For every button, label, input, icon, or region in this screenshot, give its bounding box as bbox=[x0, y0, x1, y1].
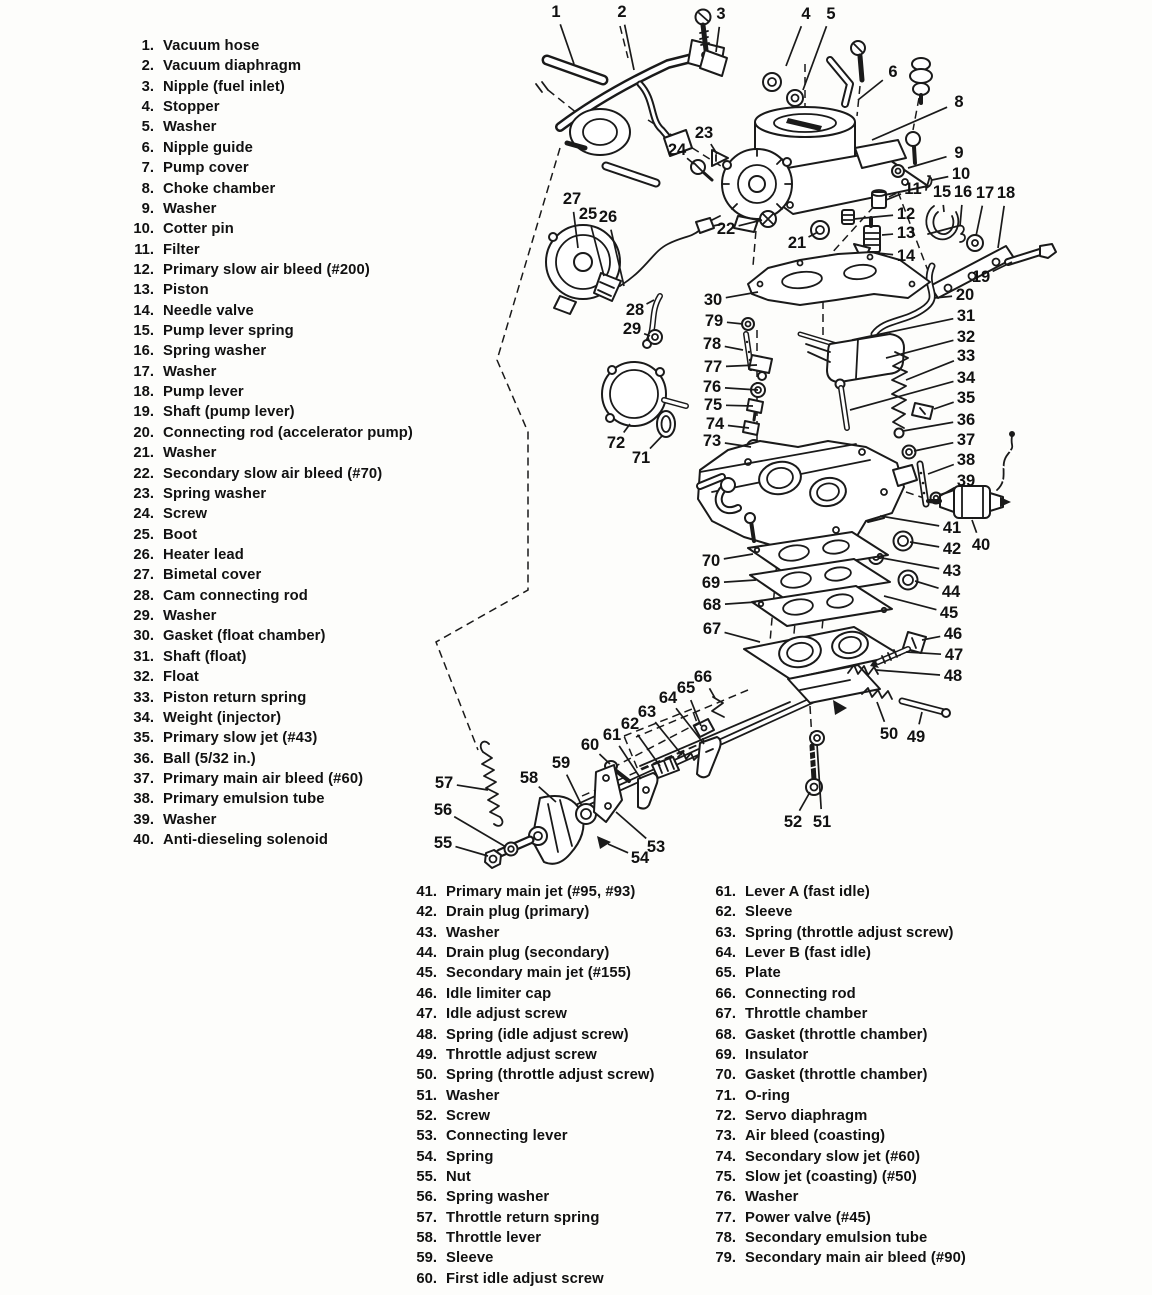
callout-leader-18 bbox=[998, 206, 1004, 248]
callout-leader-70 bbox=[724, 554, 753, 559]
callout-leader-10 bbox=[932, 177, 948, 180]
callout-70: 70 bbox=[702, 552, 720, 570]
callout-64: 64 bbox=[659, 689, 678, 707]
callout-18: 18 bbox=[997, 184, 1015, 202]
callout-48: 48 bbox=[944, 667, 962, 685]
callout-4: 4 bbox=[801, 5, 811, 23]
callout-leader-28 bbox=[647, 300, 654, 304]
callout-11: 11 bbox=[904, 180, 921, 198]
callout-68: 68 bbox=[703, 596, 721, 614]
callout-71: 71 bbox=[632, 449, 650, 467]
callout-63: 63 bbox=[638, 703, 656, 721]
callout-39: 39 bbox=[957, 472, 975, 490]
callout-72: 72 bbox=[607, 434, 625, 452]
callout-12: 12 bbox=[897, 205, 915, 223]
callout-9: 9 bbox=[954, 144, 963, 162]
callout-78: 78 bbox=[703, 335, 721, 353]
callout-32: 32 bbox=[957, 328, 975, 346]
callout-leader-35 bbox=[934, 402, 954, 409]
callout-28: 28 bbox=[626, 301, 644, 319]
secondary-jets-column bbox=[742, 318, 772, 454]
callout-leader-16 bbox=[960, 205, 962, 226]
callout-leader-65 bbox=[691, 700, 701, 726]
callout-leader-54 bbox=[608, 844, 628, 853]
callout-79: 79 bbox=[705, 312, 723, 330]
callout-leader-55 bbox=[455, 847, 488, 856]
callout-leader-13 bbox=[882, 234, 893, 235]
callout-leader-79 bbox=[727, 322, 743, 324]
callout-leader-50 bbox=[877, 702, 884, 722]
callout-leader-57 bbox=[457, 785, 488, 790]
callout-23: 23 bbox=[695, 124, 713, 142]
callout-leader-2 bbox=[625, 25, 634, 70]
callout-leader-67 bbox=[725, 632, 760, 642]
callout-52: 52 bbox=[784, 813, 802, 831]
callout-37: 37 bbox=[957, 431, 975, 449]
exploded-diagram: 1234568910111213141516171819202122232425… bbox=[0, 0, 1152, 1295]
callout-leader-4 bbox=[786, 26, 801, 66]
callout-leader-34 bbox=[850, 381, 953, 410]
callout-53: 53 bbox=[647, 838, 665, 856]
callout-leader-69 bbox=[724, 580, 756, 582]
callout-41: 41 bbox=[943, 519, 961, 537]
callout-29: 29 bbox=[623, 320, 641, 338]
callout-19: 19 bbox=[972, 268, 990, 286]
callout-31: 31 bbox=[957, 307, 975, 325]
callout-55: 55 bbox=[434, 834, 452, 852]
callout-leader-49 bbox=[919, 712, 922, 724]
callout-5: 5 bbox=[826, 5, 835, 23]
callout-40: 40 bbox=[972, 536, 990, 554]
callout-43: 43 bbox=[943, 562, 961, 580]
callout-leader-52 bbox=[799, 792, 810, 811]
callout-15: 15 bbox=[933, 183, 951, 201]
callout-leader-1 bbox=[560, 24, 574, 64]
callout-38: 38 bbox=[957, 451, 975, 469]
callout-8: 8 bbox=[954, 93, 963, 111]
callout-30: 30 bbox=[704, 291, 722, 309]
callout-33: 33 bbox=[957, 347, 975, 365]
callout-35: 35 bbox=[957, 389, 975, 407]
callout-27: 27 bbox=[563, 190, 581, 208]
callout-leader-75 bbox=[726, 405, 753, 406]
callout-leader-44 bbox=[915, 581, 939, 588]
callout-leader-33 bbox=[906, 361, 954, 380]
callout-leader-63 bbox=[655, 722, 682, 755]
callout-50: 50 bbox=[880, 725, 898, 743]
throttle-lever-cluster bbox=[481, 719, 721, 868]
callout-6: 6 bbox=[888, 63, 897, 81]
callout-leader-71 bbox=[650, 436, 662, 449]
throttle-gasket-stack bbox=[748, 532, 892, 626]
callout-leader-38 bbox=[928, 464, 954, 474]
callout-leader-51 bbox=[817, 744, 821, 809]
callout-54: 54 bbox=[631, 849, 650, 867]
callout-1: 1 bbox=[551, 3, 560, 21]
callout-leader-6 bbox=[858, 80, 883, 100]
callout-leader-78 bbox=[725, 346, 743, 350]
callout-leader-68 bbox=[725, 602, 756, 604]
callout-leader-43 bbox=[882, 558, 939, 569]
callout-77: 77 bbox=[704, 358, 722, 376]
callout-leader-45 bbox=[884, 596, 936, 610]
callout-60: 60 bbox=[581, 736, 599, 754]
callout-leader-37 bbox=[914, 443, 953, 451]
callout-24: 24 bbox=[668, 141, 687, 159]
callout-leader-48 bbox=[876, 670, 940, 675]
callout-2: 2 bbox=[617, 3, 626, 21]
callout-leader-53 bbox=[616, 812, 646, 838]
callout-leader-47 bbox=[906, 652, 941, 654]
callout-66: 66 bbox=[694, 668, 712, 686]
callout-3: 3 bbox=[716, 5, 725, 23]
diagram-page: 1.Vacuum hose2.Vacuum diaphragm3.Nipple … bbox=[0, 0, 1152, 1295]
callout-49: 49 bbox=[907, 728, 925, 746]
callout-59: 59 bbox=[552, 754, 570, 772]
callout-leader-40 bbox=[972, 520, 977, 533]
callout-leader-15 bbox=[943, 205, 944, 212]
callout-14: 14 bbox=[897, 247, 916, 265]
callout-76: 76 bbox=[703, 378, 721, 396]
callout-leader-lines bbox=[454, 24, 1012, 856]
callout-45: 45 bbox=[940, 604, 958, 622]
callout-51: 51 bbox=[813, 813, 831, 831]
callout-leader-17 bbox=[976, 206, 982, 236]
callout-26: 26 bbox=[599, 208, 617, 226]
callout-73: 73 bbox=[703, 432, 721, 450]
callout-42: 42 bbox=[943, 540, 961, 558]
callout-67: 67 bbox=[703, 620, 721, 638]
callout-34: 34 bbox=[957, 369, 976, 387]
callout-16: 16 bbox=[954, 183, 972, 201]
callout-leader-56 bbox=[454, 817, 506, 847]
callout-58: 58 bbox=[520, 769, 538, 787]
callout-74: 74 bbox=[706, 415, 725, 433]
callout-leader-60 bbox=[599, 754, 610, 764]
callout-17: 17 bbox=[976, 184, 994, 202]
servo-diaphragm-assembly bbox=[602, 362, 686, 437]
callout-10: 10 bbox=[952, 165, 970, 183]
callout-69: 69 bbox=[702, 574, 720, 592]
bolt-and-washer bbox=[806, 731, 824, 795]
callout-22: 22 bbox=[717, 220, 735, 238]
callout-13: 13 bbox=[897, 224, 915, 242]
callout-75: 75 bbox=[704, 396, 722, 414]
callout-44: 44 bbox=[942, 583, 961, 601]
callout-leader-42 bbox=[910, 542, 939, 547]
callout-61: 61 bbox=[603, 726, 621, 744]
callout-36: 36 bbox=[957, 411, 975, 429]
float-chamber-body bbox=[698, 441, 917, 549]
callout-46: 46 bbox=[944, 625, 962, 643]
callout-56: 56 bbox=[434, 801, 452, 819]
callout-65: 65 bbox=[677, 679, 695, 697]
callout-leader-12 bbox=[854, 215, 893, 219]
callout-20: 20 bbox=[956, 286, 974, 304]
callout-47: 47 bbox=[945, 646, 963, 664]
callout-57: 57 bbox=[435, 774, 453, 792]
callout-62: 62 bbox=[621, 715, 639, 733]
callout-25: 25 bbox=[579, 205, 597, 223]
callout-leader-5 bbox=[803, 26, 827, 90]
callout-leader-41 bbox=[880, 516, 939, 526]
callout-21: 21 bbox=[788, 234, 806, 252]
callout-leader-36 bbox=[903, 422, 953, 431]
